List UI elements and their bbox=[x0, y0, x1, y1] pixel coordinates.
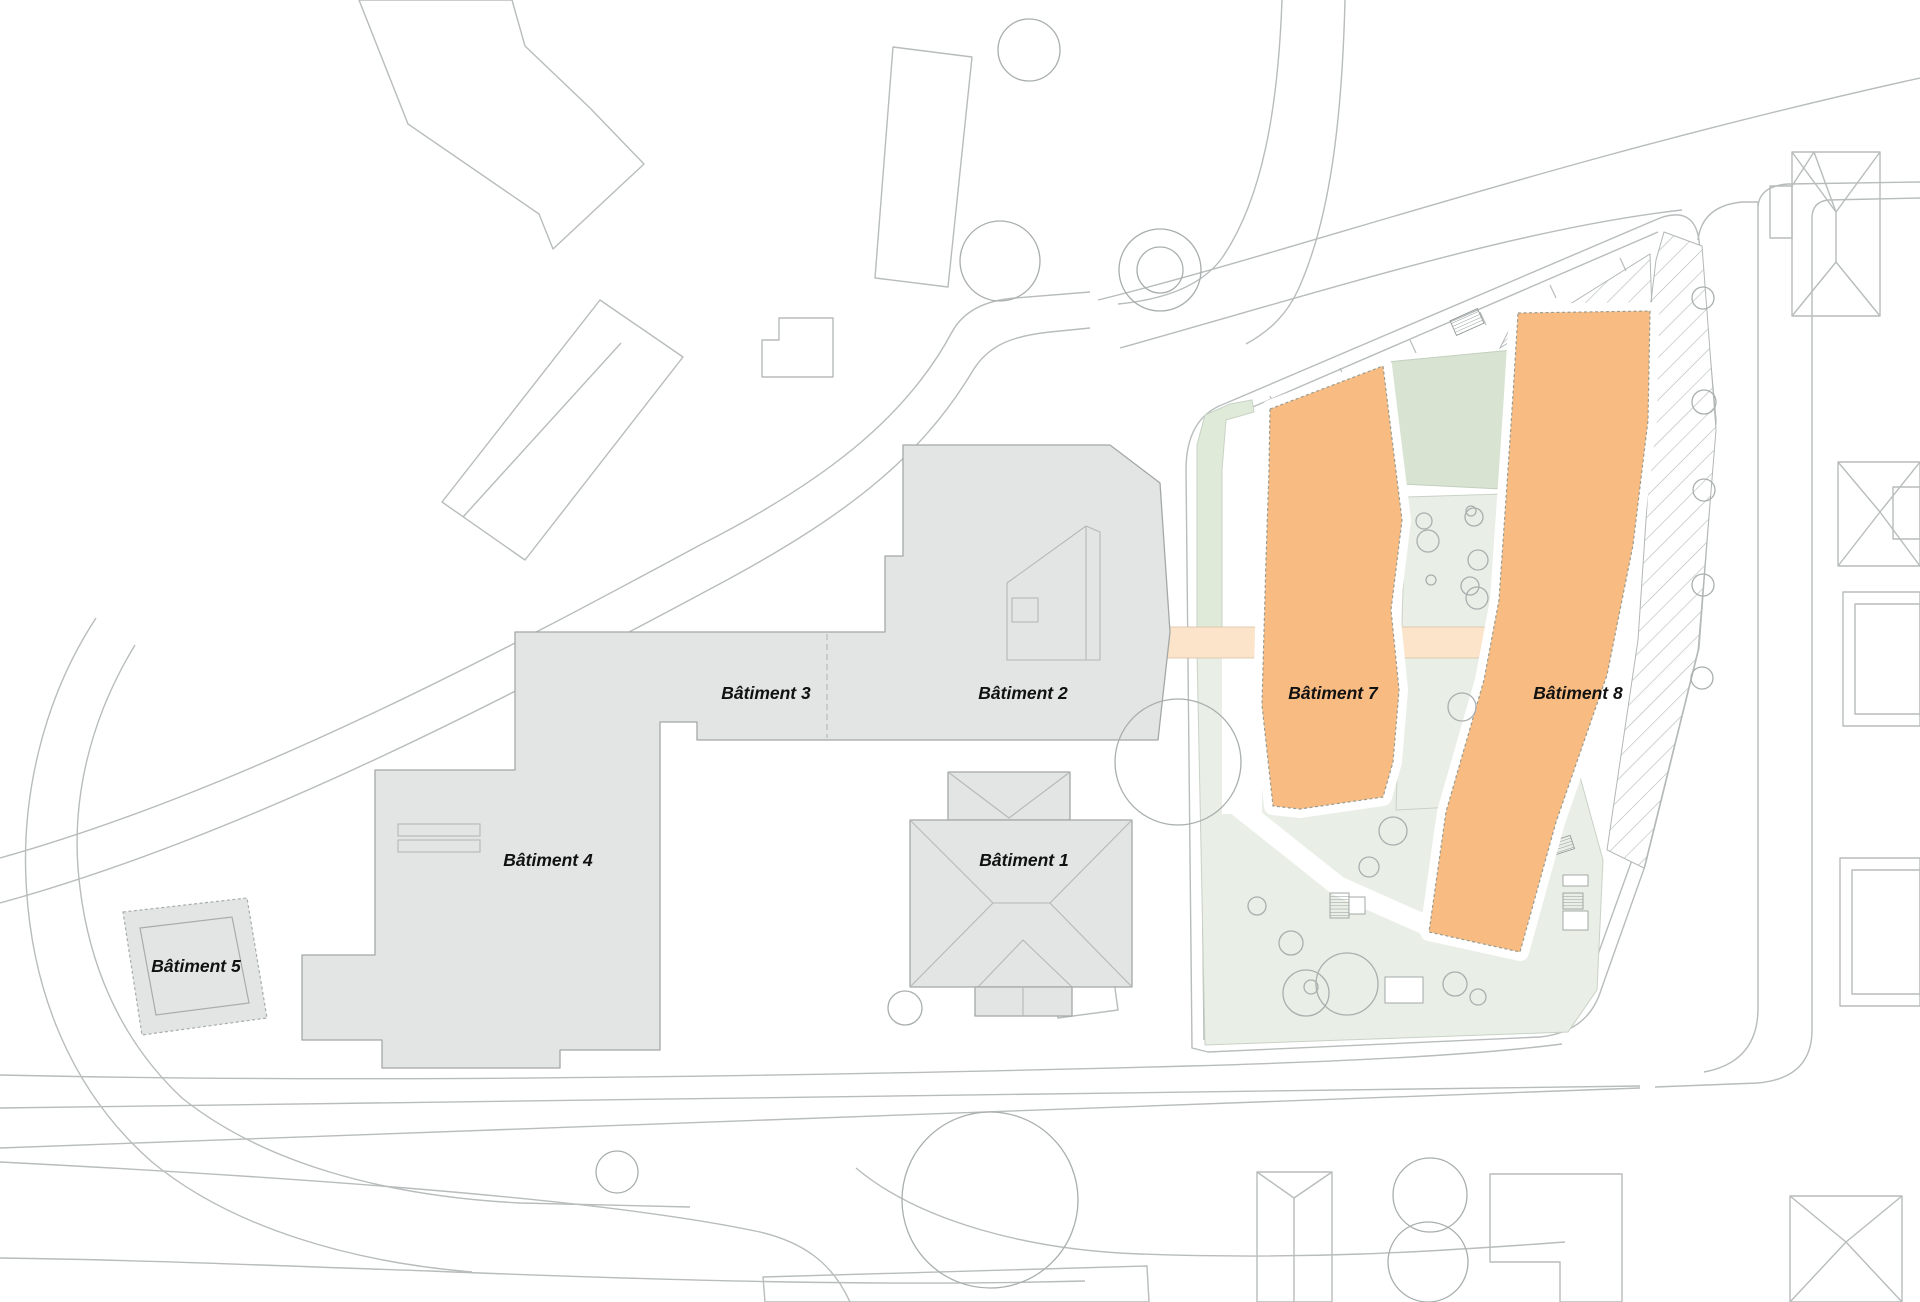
context-building-outline bbox=[442, 300, 683, 560]
road-line bbox=[0, 1258, 1085, 1283]
batiment-7-shape[interactable] bbox=[1262, 366, 1402, 809]
context-building-outline bbox=[1843, 592, 1920, 726]
road-line bbox=[1704, 202, 1758, 1072]
tree-circle bbox=[596, 1151, 638, 1193]
context-building-outline bbox=[1770, 152, 1880, 316]
roundabout-circles bbox=[1119, 229, 1201, 311]
green-area-dark-north bbox=[1387, 350, 1512, 489]
road-line bbox=[1698, 202, 1758, 240]
context-building-outline bbox=[1490, 1174, 1622, 1302]
crosswalk-hatch bbox=[1450, 309, 1484, 336]
context-building-outline bbox=[1257, 1172, 1332, 1302]
tree-circle bbox=[1691, 667, 1713, 689]
tree-circle bbox=[1393, 1158, 1467, 1232]
tree-circle bbox=[960, 221, 1040, 301]
context-building-outline bbox=[1838, 462, 1920, 566]
road-line bbox=[856, 1168, 1565, 1256]
tree-circle bbox=[902, 1112, 1078, 1288]
batiment-1-shape bbox=[910, 772, 1132, 1016]
batiment-7-label: Bâtiment 7 bbox=[1288, 683, 1379, 703]
tree-circle bbox=[998, 19, 1060, 81]
context-building-outline bbox=[1790, 1196, 1902, 1302]
context-building-outline bbox=[1840, 858, 1920, 1006]
context-building-outline bbox=[875, 47, 972, 287]
green-strip-west bbox=[1197, 400, 1254, 650]
batiment-2-label: Bâtiment 2 bbox=[978, 683, 1068, 703]
batiment-5-label: Bâtiment 5 bbox=[151, 956, 241, 976]
tree-circle bbox=[1388, 1222, 1468, 1302]
context-building-outline bbox=[763, 1266, 1149, 1302]
existing-buildings-layer bbox=[123, 445, 1170, 1068]
plaza-rect bbox=[1385, 977, 1423, 1003]
batiment-1-label: Bâtiment 1 bbox=[979, 850, 1068, 870]
batiment-4-label: Bâtiment 4 bbox=[503, 850, 593, 870]
tree-circle bbox=[888, 991, 922, 1025]
stair-symbol bbox=[1330, 893, 1365, 918]
batiment-3-label: Bâtiment 3 bbox=[721, 683, 811, 703]
context-building-outline bbox=[359, 0, 644, 249]
site-plan-canvas: Bâtiment 3 Bâtiment 2 Bâtiment 7 Bâtimen… bbox=[0, 0, 1920, 1302]
site-plan: Bâtiment 3 Bâtiment 2 Bâtiment 7 Bâtimen… bbox=[0, 0, 1920, 1302]
road-line bbox=[1246, 0, 1345, 344]
road-line bbox=[0, 1044, 1562, 1079]
context-building-outline bbox=[762, 318, 833, 377]
road-line bbox=[1098, 78, 1920, 300]
batiment-8-label: Bâtiment 8 bbox=[1533, 683, 1623, 703]
